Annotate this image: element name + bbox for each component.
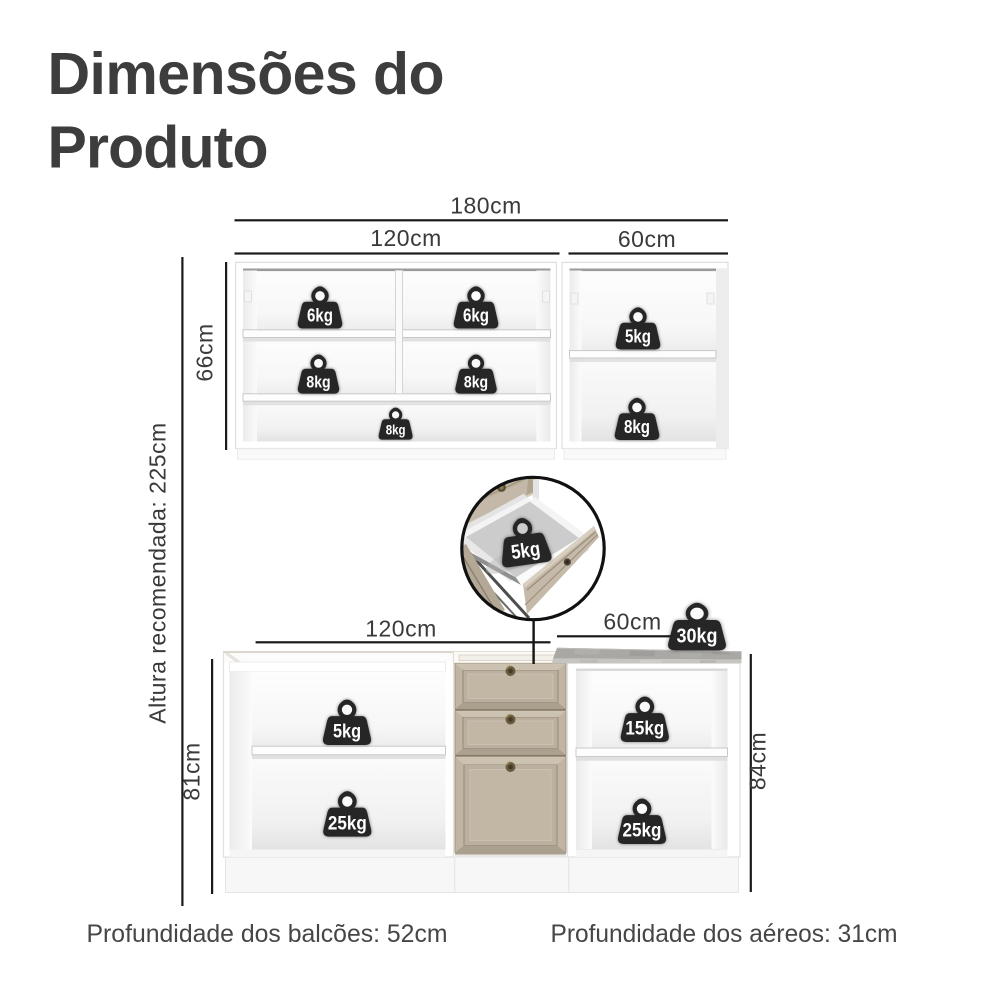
- svg-text:66cm: 66cm: [192, 323, 218, 381]
- svg-text:6kg: 6kg: [463, 306, 489, 326]
- svg-text:8kg: 8kg: [624, 417, 650, 437]
- svg-text:81cm: 81cm: [179, 742, 205, 800]
- svg-text:180cm: 180cm: [450, 193, 522, 219]
- svg-text:25kg: 25kg: [623, 820, 662, 842]
- svg-text:8kg: 8kg: [306, 372, 330, 391]
- svg-text:60cm: 60cm: [603, 609, 661, 635]
- svg-text:15kg: 15kg: [625, 718, 664, 740]
- svg-text:5kg: 5kg: [510, 538, 542, 564]
- svg-text:Dimensões do: Dimensões do: [48, 41, 445, 107]
- svg-text:30kg: 30kg: [677, 624, 718, 647]
- svg-text:Profundidade dos aéreos: 31cm: Profundidade dos aéreos: 31cm: [551, 920, 898, 948]
- svg-text:Produto: Produto: [48, 115, 269, 181]
- svg-text:Altura recomendada: 225cm: Altura recomendada: 225cm: [145, 422, 171, 723]
- svg-text:60cm: 60cm: [618, 226, 676, 252]
- svg-text:120cm: 120cm: [370, 225, 442, 251]
- svg-text:5kg: 5kg: [333, 721, 361, 743]
- svg-text:Profundidade dos balcões: 52cm: Profundidade dos balcões: 52cm: [87, 920, 448, 948]
- svg-text:8kg: 8kg: [464, 372, 488, 391]
- svg-text:6kg: 6kg: [307, 306, 333, 326]
- svg-text:8kg: 8kg: [386, 423, 406, 438]
- svg-text:5kg: 5kg: [625, 327, 651, 347]
- svg-text:120cm: 120cm: [365, 616, 437, 642]
- svg-text:84cm: 84cm: [745, 732, 771, 790]
- svg-text:25kg: 25kg: [328, 812, 367, 834]
